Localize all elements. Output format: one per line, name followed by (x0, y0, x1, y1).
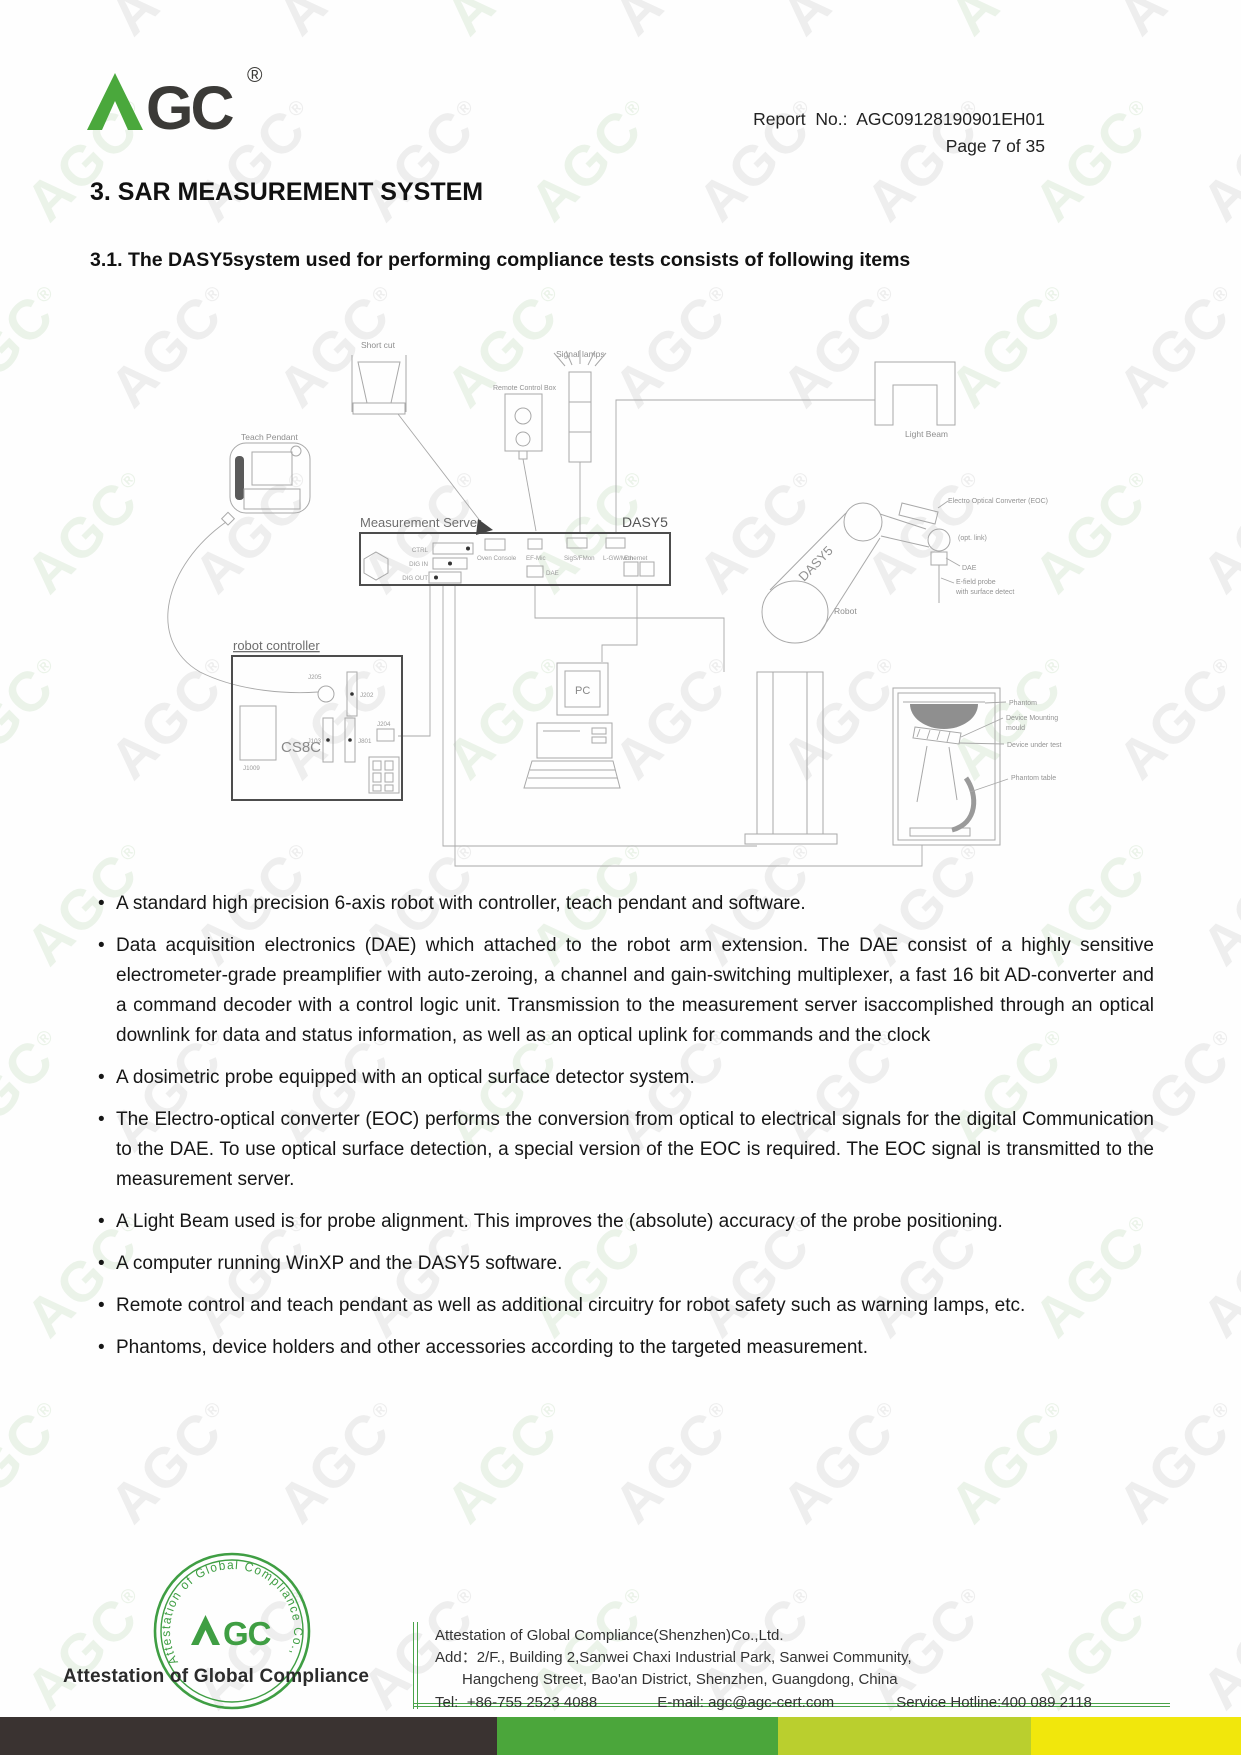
short-cut-lamp: Short cut (352, 340, 406, 414)
measurement-server-label: Measurement Server (360, 515, 482, 530)
agc-logo-letters: GC (146, 74, 233, 136)
port-ctrl-label: CTRL (412, 547, 429, 554)
connector-j801-label: J801 (358, 738, 372, 745)
compliance-stamp: Attestation of Global Compliance Co., Lt… (147, 1546, 317, 1716)
opt-link-label: (opt. link) (958, 535, 987, 542)
system-diagram: Teach Pendant Short cut Remote Control B… (140, 300, 1130, 875)
teach-pendant-label: Teach Pendant (241, 432, 298, 442)
phantom-table-label: Phantom table (1011, 775, 1056, 782)
phantom-dome-icon (910, 704, 978, 729)
footer-divider (413, 1622, 414, 1709)
footer-address-label: Add： (435, 1649, 477, 1666)
footer-tel: +86-755 2523 4088 (467, 1694, 598, 1711)
pc-keyboard-icon (524, 761, 620, 788)
connector-j1009-label: J1009 (243, 765, 260, 772)
short-cut-label: Short cut (361, 340, 396, 350)
mounting-label-1: Device Mounting (1006, 715, 1058, 722)
list-item: A computer running WinXP and the DASY5 s… (98, 1249, 1154, 1279)
report-number: Report No.: AGC09128190901EH01 (753, 106, 1045, 133)
probe-label-1: E-field probe (956, 579, 996, 586)
probe-label-2: with surface detect (955, 589, 1014, 596)
footer-address-2: Hangcheng Street, Bao'an District, Shenz… (435, 1669, 1092, 1691)
dut-label: Device under test (1007, 742, 1062, 749)
robot-label: Robot (834, 606, 857, 616)
teach-pendant: Teach Pendant (222, 432, 310, 525)
page-number: Page 7 of 35 (753, 133, 1045, 160)
port-dae-label: DAE (546, 570, 559, 577)
list-item: A standard high precision 6-axis robot w… (98, 889, 1154, 919)
stamp-agc-logo-icon: GC (191, 1615, 271, 1652)
footer-divider (417, 1622, 418, 1709)
eoc-label: Electro Optical Converter (EOC) (948, 498, 1048, 505)
footer-email[interactable]: agc@agc-cert.com (708, 1694, 834, 1711)
port-oven-console-label: Oven Console (477, 555, 517, 562)
pc-label: PC (575, 685, 590, 697)
stamp-logo-letters: GC (223, 1615, 271, 1652)
footer-hotline: Service Hotline:400 089 2118 (896, 1694, 1092, 1711)
port-dig-out-label: DIG OUT (402, 575, 428, 582)
connector-j205-label: J205 (308, 674, 322, 681)
list-item: Remote control and teach pendant as well… (98, 1291, 1154, 1321)
diagram-wires (168, 400, 922, 866)
connector-j204-label: J204 (377, 721, 391, 728)
phantom-station: Phantom Device Mounting mould Device und… (893, 688, 1062, 845)
robot-controller-label: robot controller (233, 638, 320, 653)
connector-j202-label: J202 (360, 692, 374, 699)
footer-email-label: E-mail: (657, 1694, 704, 1711)
measurement-server: Measurement Server DASY5 CTRL DIG IN DIG… (360, 514, 670, 585)
list-item: Data acquisition electronics (DAE) which… (98, 931, 1154, 1051)
report-header: Report No.: AGC09128190901EH01 Page 7 of… (753, 106, 1045, 160)
robot-arm-text: DASY5 (795, 543, 835, 584)
footer-tel-label: Tel: (435, 1694, 458, 1711)
attestation-text: Attestation of Global Compliance (63, 1666, 369, 1688)
bar-segment-green (497, 1717, 778, 1755)
list-item: Phantoms, device holders and other acces… (98, 1333, 1154, 1363)
remote-control-box: Remote Control Box (493, 385, 557, 459)
eoc-block-icon (899, 503, 938, 524)
light-beam: Light Beam (875, 362, 955, 439)
port-dig-in-label: DIG IN (409, 561, 428, 568)
footer-company-name: Attestation of Global Compliance(Shenzhe… (435, 1625, 1092, 1647)
phantom-label: Phantom (1009, 700, 1037, 707)
remote-control-box-label: Remote Control Box (493, 385, 557, 392)
bar-segment-yellow (1031, 1717, 1241, 1755)
dasy-hexagon-icon (364, 552, 388, 580)
port-ethernet-label: Ethernet (624, 555, 648, 562)
item-list: A standard high precision 6-axis robot w… (98, 889, 1154, 1375)
port-ef-mic-label: EF-Mic (526, 555, 546, 562)
light-beam-label: Light Beam (905, 429, 948, 439)
bar-segment-dark (0, 1717, 497, 1755)
dae-block-icon (931, 552, 947, 565)
agc-logo: GC ® (85, 70, 262, 136)
footer-address-1: 2/F., Building 2,Sanwei Chaxi Industrial… (477, 1649, 912, 1666)
report-page: AGC®AGC®AGC®AGC®AGC®AGC®AGC®AGC®AGC®AGC®… (0, 0, 1241, 1755)
pc: PC (524, 663, 620, 788)
list-item: A dosimetric probe equipped with an opti… (98, 1063, 1154, 1093)
agc-logo-icon: GC (85, 70, 245, 136)
agc-logo-a-icon (87, 73, 143, 130)
bottom-color-bar (0, 1717, 1241, 1755)
connector-j103-label: J103 (308, 738, 322, 745)
bar-segment-lime (778, 1717, 1031, 1755)
list-item: The Electro-optical converter (EOC) perf… (98, 1105, 1154, 1195)
robot-arm: DASY5 Robot Electro Optical Converter (E… (745, 498, 1048, 844)
section-title: 3. SAR MEASUREMENT SYSTEM (90, 178, 483, 207)
controller-keypad-icon (369, 757, 399, 793)
list-item: A Light Beam used is for probe alignment… (98, 1207, 1154, 1237)
section-subtitle: 3.1. The DASY5system used for performing… (90, 249, 910, 272)
port-sig-mon-label: SigS/FMon (564, 555, 595, 562)
pendant-handle (235, 456, 244, 500)
signal-lamps: Signal lamps (554, 349, 606, 462)
registered-mark: ® (247, 64, 262, 88)
robot-controller: robot controller J1009 CS8C J205 J202 J1… (232, 638, 402, 800)
dasy5-label: DASY5 (622, 514, 668, 530)
footer-company-block: Attestation of Global Compliance(Shenzhe… (435, 1625, 1092, 1714)
mounting-label-2: mould (1006, 725, 1025, 732)
dae-arm-label: DAE (962, 565, 977, 572)
